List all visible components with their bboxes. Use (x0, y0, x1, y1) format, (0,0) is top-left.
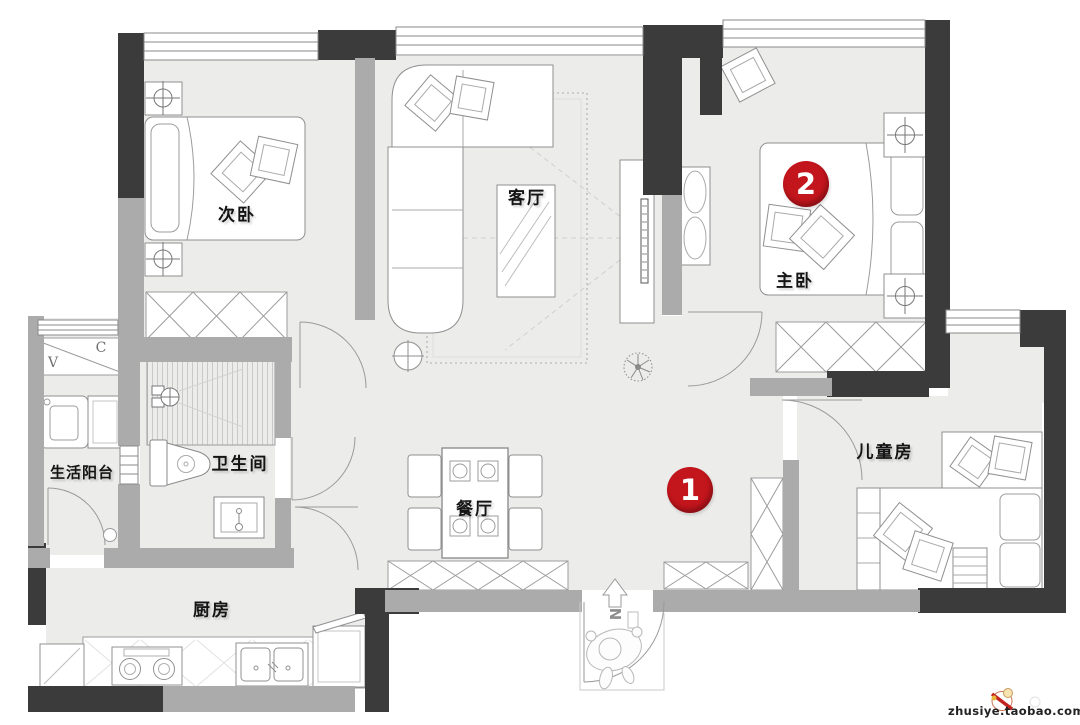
dining-chair (408, 455, 441, 497)
window (120, 446, 138, 484)
zone-marker-1: 1 (667, 467, 713, 513)
dining-chair (509, 455, 542, 497)
room-label-kids: 儿童房 (857, 438, 914, 463)
window (946, 310, 1020, 333)
window (144, 33, 318, 60)
room-label-bedroom2: 次卧 (218, 201, 256, 226)
dresser (680, 167, 710, 265)
floor-plan-canvas (0, 0, 1080, 725)
floor-plan: 次卧 客厅 主卧 生活阳台 卫生间 餐厅 厨房 儿童房 1 2 V C N zh… (0, 0, 1080, 725)
dining-chair (509, 508, 542, 550)
person-figure (581, 622, 647, 690)
balcony-cabinet-label-c: C (96, 340, 107, 356)
room-label-kitchen: 厨房 (193, 596, 231, 621)
bed-steps (953, 548, 987, 590)
room-label-balcony: 生活阳台 (50, 462, 114, 483)
room-label-dining: 餐厅 (456, 495, 494, 520)
bed-pillow (891, 151, 923, 215)
window (396, 27, 643, 55)
stove-icon (112, 647, 182, 685)
window (38, 320, 118, 335)
bed-pillow (151, 124, 179, 232)
watermark-text: zhusiye.taobao.com (948, 704, 1080, 718)
vanity-sink (214, 497, 264, 538)
north-label: N (607, 608, 625, 621)
room-label-living: 客厅 (508, 184, 546, 209)
kids-shelf (857, 488, 880, 590)
bed-pillow (1000, 543, 1040, 587)
wardrobe (776, 322, 926, 372)
sink-icon (236, 643, 308, 686)
balcony-cabinet-label-v: V (48, 355, 58, 371)
bed-pillow (1000, 494, 1040, 540)
zone-marker-2: 2 (783, 161, 829, 207)
window (723, 20, 925, 47)
wardrobe (146, 292, 287, 340)
room-label-bathroom: 卫生间 (212, 450, 269, 475)
dining-chair (408, 508, 441, 550)
room-label-master: 主卧 (776, 267, 814, 292)
